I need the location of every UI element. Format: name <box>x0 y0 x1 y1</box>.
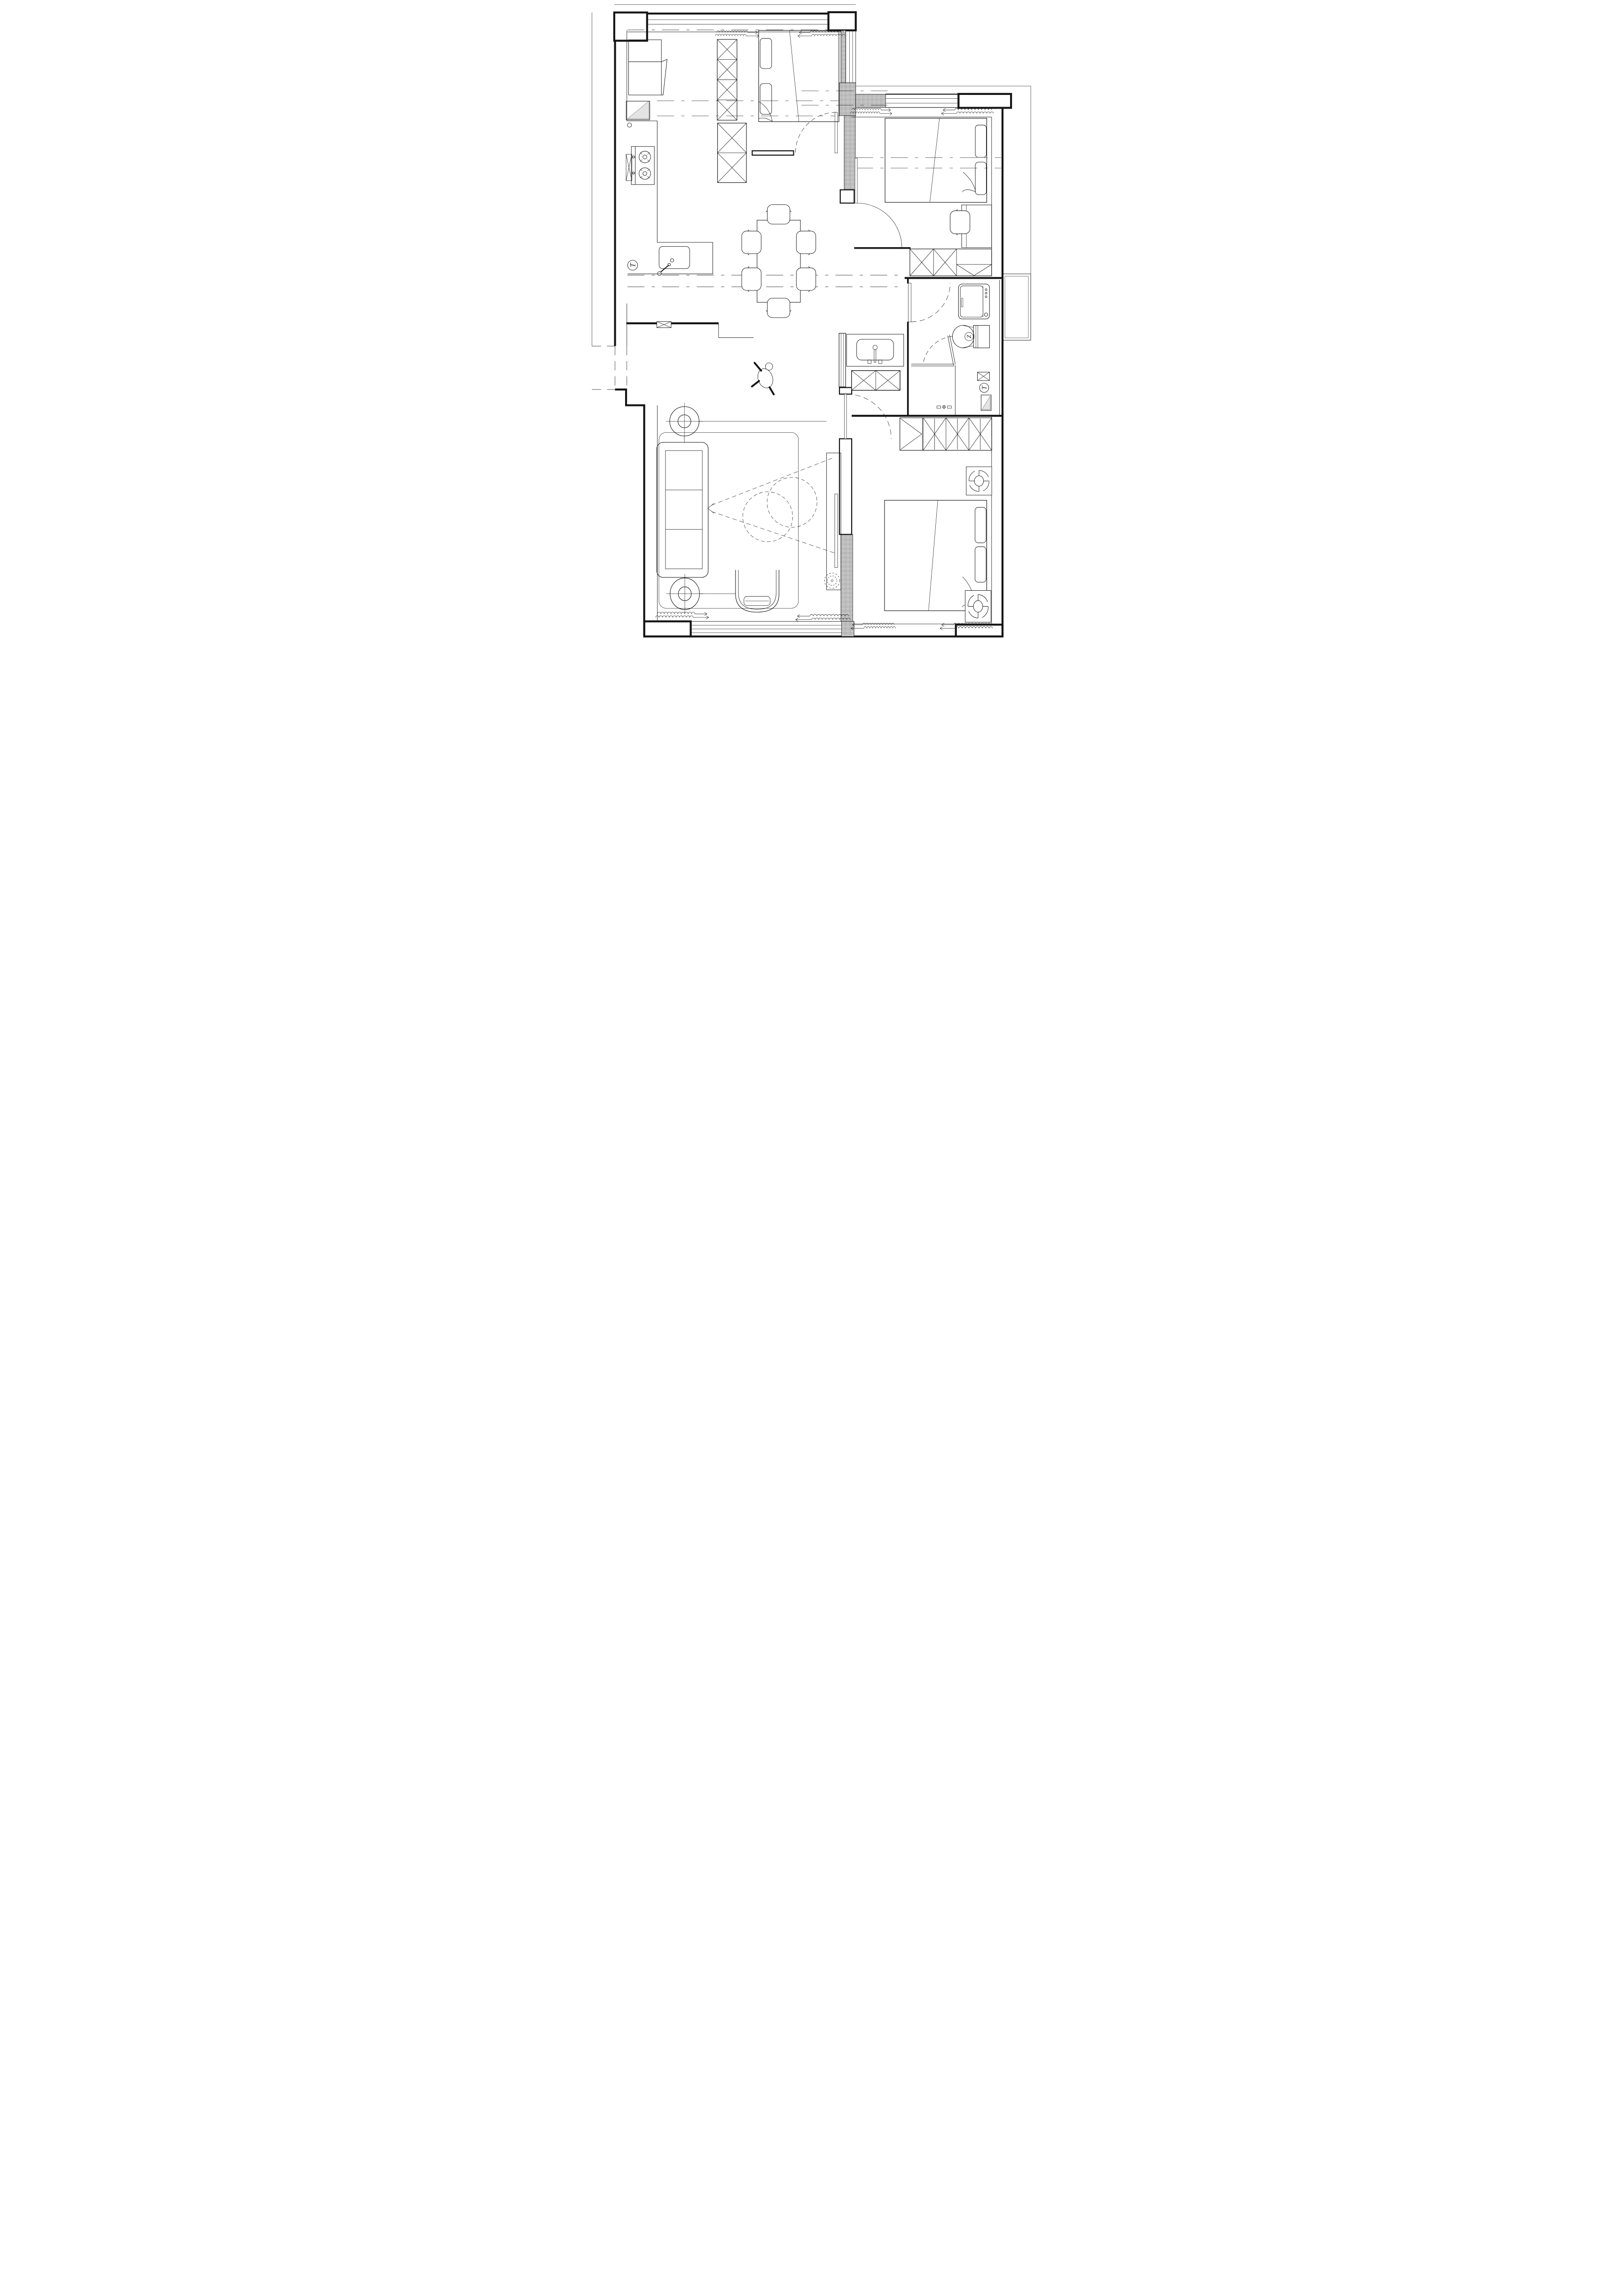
ac-platform <box>1003 274 1031 340</box>
column-bottom-right <box>956 625 1003 636</box>
structural-columns <box>614 12 1011 636</box>
exhaust-fan-icon-2 <box>965 591 991 623</box>
floor-plan-drawing: T <box>581 0 1033 642</box>
tv <box>835 494 838 568</box>
column-top-left <box>614 13 647 41</box>
dining-chair-left-1 <box>742 230 761 255</box>
room-bathroom: Z T <box>937 284 991 410</box>
lounge-chair <box>736 570 779 612</box>
wardrobe-2 <box>910 249 992 276</box>
dining-chair-left-2 <box>742 266 761 292</box>
desk-chair <box>950 210 970 235</box>
sofa <box>657 442 708 577</box>
dining-chair-right-1 <box>796 230 815 255</box>
column-bottom-left <box>644 621 691 636</box>
water-heater <box>981 395 991 411</box>
column-top-middle <box>829 12 856 31</box>
bedroom1-door <box>795 112 837 153</box>
room-living <box>657 403 841 614</box>
kitchen-sink <box>658 246 689 275</box>
vanity-faucet <box>868 345 882 364</box>
room-dining <box>742 205 816 395</box>
kitchen-counter <box>627 121 713 274</box>
hallway-vanity <box>839 333 904 390</box>
window-bedroom2-right <box>941 108 994 115</box>
symbol-circle <box>627 123 632 127</box>
vent-box <box>657 321 671 328</box>
bath-floor-drain: T <box>979 383 989 392</box>
windows <box>656 31 994 630</box>
window-bedroom2-left <box>850 108 892 115</box>
pocket-door <box>911 364 955 366</box>
rug <box>659 432 799 608</box>
gas-meter-box <box>626 154 632 180</box>
person-figure <box>752 363 776 394</box>
wardrobe-tall <box>717 39 737 120</box>
ac-platform-inner <box>1005 276 1028 338</box>
room-kitchen: T <box>626 121 713 328</box>
toilet-logo-glyph: Z <box>966 335 972 338</box>
toilet: Z <box>952 325 989 348</box>
desk-daybed <box>628 40 667 95</box>
gas-stove <box>631 147 654 185</box>
room-bedroom-bottom-right <box>885 418 992 622</box>
washing-machine <box>958 284 989 319</box>
kitchen-drain-glyph: T <box>629 263 637 267</box>
dining-table <box>757 220 800 303</box>
shower-valve <box>937 405 951 409</box>
kitchen-floor-drain: T <box>627 260 637 270</box>
oval-fan-icon <box>666 574 704 614</box>
tv-cabinet <box>827 453 841 590</box>
shoe-cabinet <box>626 101 650 120</box>
bed-2 <box>885 118 987 203</box>
ceiling-fan-icon <box>666 403 703 440</box>
entry-opening <box>592 346 627 390</box>
hatched-walls <box>839 31 885 637</box>
shower-glass-door <box>923 335 956 365</box>
exhaust-fan-icon-1 <box>966 467 992 495</box>
site-boundary-lines <box>592 5 1031 346</box>
bedroom2-door <box>855 158 902 248</box>
bed-1 <box>759 31 839 122</box>
dining-chair-top <box>766 205 791 224</box>
bathroom-door <box>909 283 950 322</box>
hall-x-cabinet <box>852 371 900 390</box>
wardrobe-3 <box>900 418 992 450</box>
tv-sightlines <box>708 457 835 553</box>
room-bedroom-top-left <box>626 31 839 183</box>
interior-walls <box>627 94 1003 624</box>
bedroom1-south-wall <box>752 151 793 155</box>
storage-cabinet <box>718 123 747 183</box>
floor-plan-sheet: T <box>581 0 1033 642</box>
dining-chair-bottom <box>766 298 791 318</box>
bath-drain-glyph: T <box>981 385 988 390</box>
column-top-right <box>958 94 1011 108</box>
bath-vent-box <box>978 372 990 381</box>
window-living-left <box>656 612 709 619</box>
screen-partition <box>839 333 846 387</box>
dining-chair-right-2 <box>796 266 815 292</box>
room-bedroom-top-right <box>885 118 992 276</box>
vanity-counter <box>846 334 904 366</box>
coffee-tables <box>743 477 817 542</box>
